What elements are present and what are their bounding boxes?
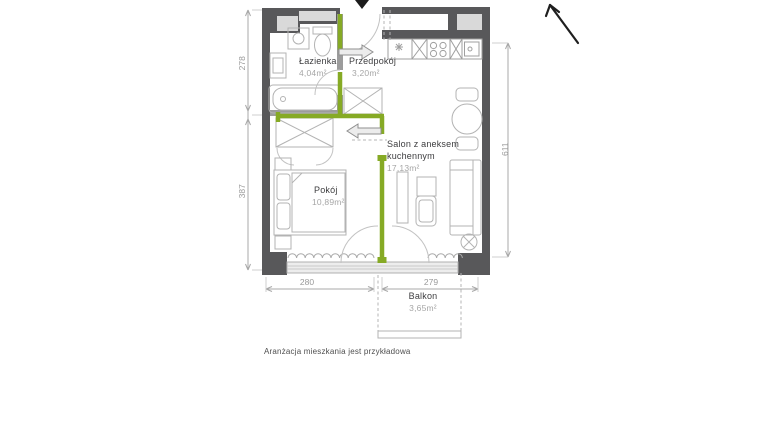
dimension-bottom-right: 279 [416,278,446,287]
radiators [288,254,462,258]
bedroom-furniture [274,118,346,249]
entrance-door-arc [340,14,380,54]
dimension-bottom-left: 280 [292,278,322,287]
dimension-left-lower: 387 [238,176,247,206]
disclaimer-text: Aranżacja mieszkania jest przykładowa [264,348,411,356]
room-area-lazienka: 4,04m² [299,69,327,78]
floor-drain-icon [461,234,477,250]
room-label-salon-line1: Salon z aneksem [387,140,459,149]
kitchen-counter [388,39,482,59]
room-area-salon: 17,13m² [387,164,420,173]
chair-icon [456,137,478,150]
nightstand-icon [275,236,291,249]
room-label-salon-line2: kuchennym [387,152,435,161]
bathtub-icon [269,85,341,113]
room-area-przedpokoj: 3,20m² [352,69,380,78]
room-label-balkon: Balkon [391,292,455,301]
floor-plan-canvas: Łazienka 4,04m² Przedpokój 3,20m² Salon … [0,0,760,428]
dimension-right: 611 [501,134,510,164]
dimension-left-upper: 278 [238,48,247,78]
stove-icon [430,42,446,56]
kitchen-sink-symbol-icon [395,43,403,51]
north-arrow-icon [546,5,578,43]
room-label-przedpokoj: Przedpokój [349,57,396,66]
entrance-arrow-icon [355,0,369,9]
room-area-pokoj: 10,89m² [312,198,345,207]
kitchen-basin-icon [465,42,480,56]
window-band [287,262,458,273]
tv-stand-icon [397,172,408,223]
side-table-icon [417,177,436,196]
room-label-pokoj: Pokój [314,186,338,195]
room-label-lazienka: Łazienka [299,57,337,66]
arrow-left-icon [347,124,381,138]
toilet-icon [313,27,332,34]
chair-icon [456,88,478,101]
dining-table-icon [452,104,482,134]
room-area-balkon: 3,65m² [391,304,455,313]
sink-icon [270,53,286,78]
sofa-icon [450,160,481,235]
